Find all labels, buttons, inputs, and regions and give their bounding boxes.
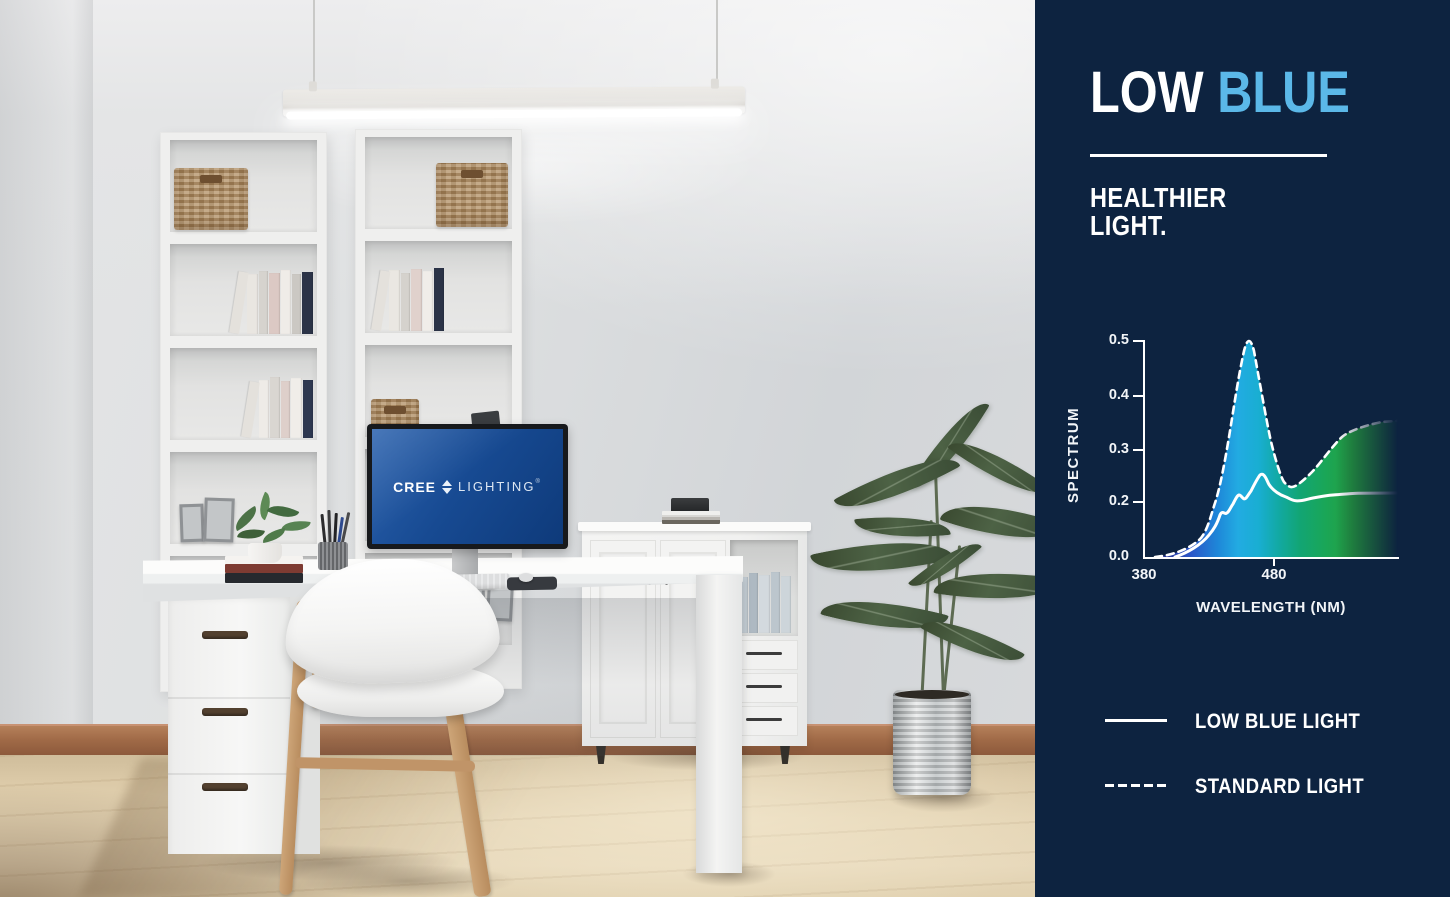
logo-product-text: LIGHTING®	[458, 479, 542, 494]
desk-plant-pot	[248, 543, 282, 563]
drawer-divider	[168, 773, 290, 775]
wall-corner	[0, 0, 93, 757]
dashed-line-swatch	[1105, 784, 1169, 787]
drawer-handle	[202, 631, 248, 639]
solid-line-swatch	[1105, 719, 1167, 722]
book-row	[371, 268, 444, 331]
shelf-compartment	[365, 137, 512, 229]
drawer-handle	[202, 708, 248, 716]
plant-leaf	[820, 585, 949, 644]
y-tick-label: 0.5	[1093, 332, 1129, 348]
subtitle-line-2: LIGHT.	[1090, 212, 1227, 240]
x-axis-line	[1143, 557, 1399, 559]
picture-frame	[179, 504, 204, 543]
x-tick-480	[1273, 559, 1275, 566]
drawer-divider	[168, 697, 290, 699]
x-tick-label: 380	[1127, 566, 1161, 583]
panel-title: LOW BLUE	[1090, 64, 1350, 122]
marketing-graphic: CREE LIGHTING® LOW BLUE HEALTHIER LIGHT.	[0, 0, 1450, 897]
pendant-mount	[309, 81, 317, 91]
y-tick	[1133, 449, 1143, 451]
shelf-compartment	[170, 244, 317, 336]
shelf-compartment	[170, 140, 317, 232]
legend-label: LOW BLUE LIGHT	[1195, 710, 1360, 734]
x-tick-label: 480	[1257, 566, 1291, 583]
cree-arrows-icon	[442, 480, 452, 494]
info-panel: LOW BLUE HEALTHIER LIGHT. SPECTRUM 0.5 0…	[1035, 0, 1450, 897]
panel-subtitle: HEALTHIER LIGHT.	[1090, 184, 1227, 240]
plant-pot	[893, 690, 971, 795]
pendant-mount	[711, 79, 719, 89]
wicker-basket	[436, 163, 508, 227]
y-axis-line	[1143, 340, 1145, 559]
trademark-symbol: ®	[535, 479, 541, 485]
x-axis-title: WAVELENGTH (NM)	[1143, 599, 1399, 616]
y-tick-label: 0.3	[1093, 441, 1129, 457]
pencil-cup	[318, 542, 348, 570]
y-tick-label: 0.0	[1093, 548, 1129, 564]
y-tick	[1133, 395, 1143, 397]
book-row	[241, 377, 313, 438]
wicker-basket	[174, 168, 248, 230]
linear-pendant-light	[283, 86, 745, 116]
y-tick-label: 0.4	[1093, 387, 1129, 403]
book-row	[738, 572, 791, 633]
book-stack-on-cabinet	[662, 511, 720, 524]
monitor-screen: CREE LIGHTING®	[372, 429, 563, 544]
shadow	[258, 858, 558, 897]
mouse	[519, 573, 533, 582]
pendant-cable-left	[313, 0, 315, 92]
title-word-blue: BLUE	[1217, 60, 1350, 125]
plant-leaf	[940, 488, 1035, 557]
logo-brand-text: CREE	[393, 479, 436, 495]
y-tick-label: 0.2	[1093, 493, 1129, 509]
cree-lighting-logo: CREE LIGHTING®	[393, 479, 542, 495]
y-tick	[1133, 501, 1143, 503]
picture-frame	[203, 497, 235, 542]
book-row	[229, 270, 313, 334]
shelf-compartment	[365, 241, 512, 333]
spectrum-curves	[1145, 333, 1403, 559]
office-scene-photo: CREE LIGHTING®	[0, 0, 1035, 897]
title-word-low: LOW	[1090, 60, 1204, 125]
desk-side-leg	[696, 575, 742, 873]
spectrum-area-fill	[1155, 341, 1401, 557]
subtitle-line-1: HEALTHIER	[1090, 184, 1227, 212]
y-tick	[1133, 340, 1143, 342]
shelf-compartment	[170, 348, 317, 440]
drawer-handle	[202, 783, 248, 791]
desk-drawer-pedestal	[168, 592, 290, 854]
y-axis-title: SPECTRUM	[1065, 382, 1082, 527]
legend-label: STANDARD LIGHT	[1195, 775, 1364, 799]
monitor: CREE LIGHTING®	[367, 424, 568, 549]
title-divider	[1090, 154, 1327, 157]
